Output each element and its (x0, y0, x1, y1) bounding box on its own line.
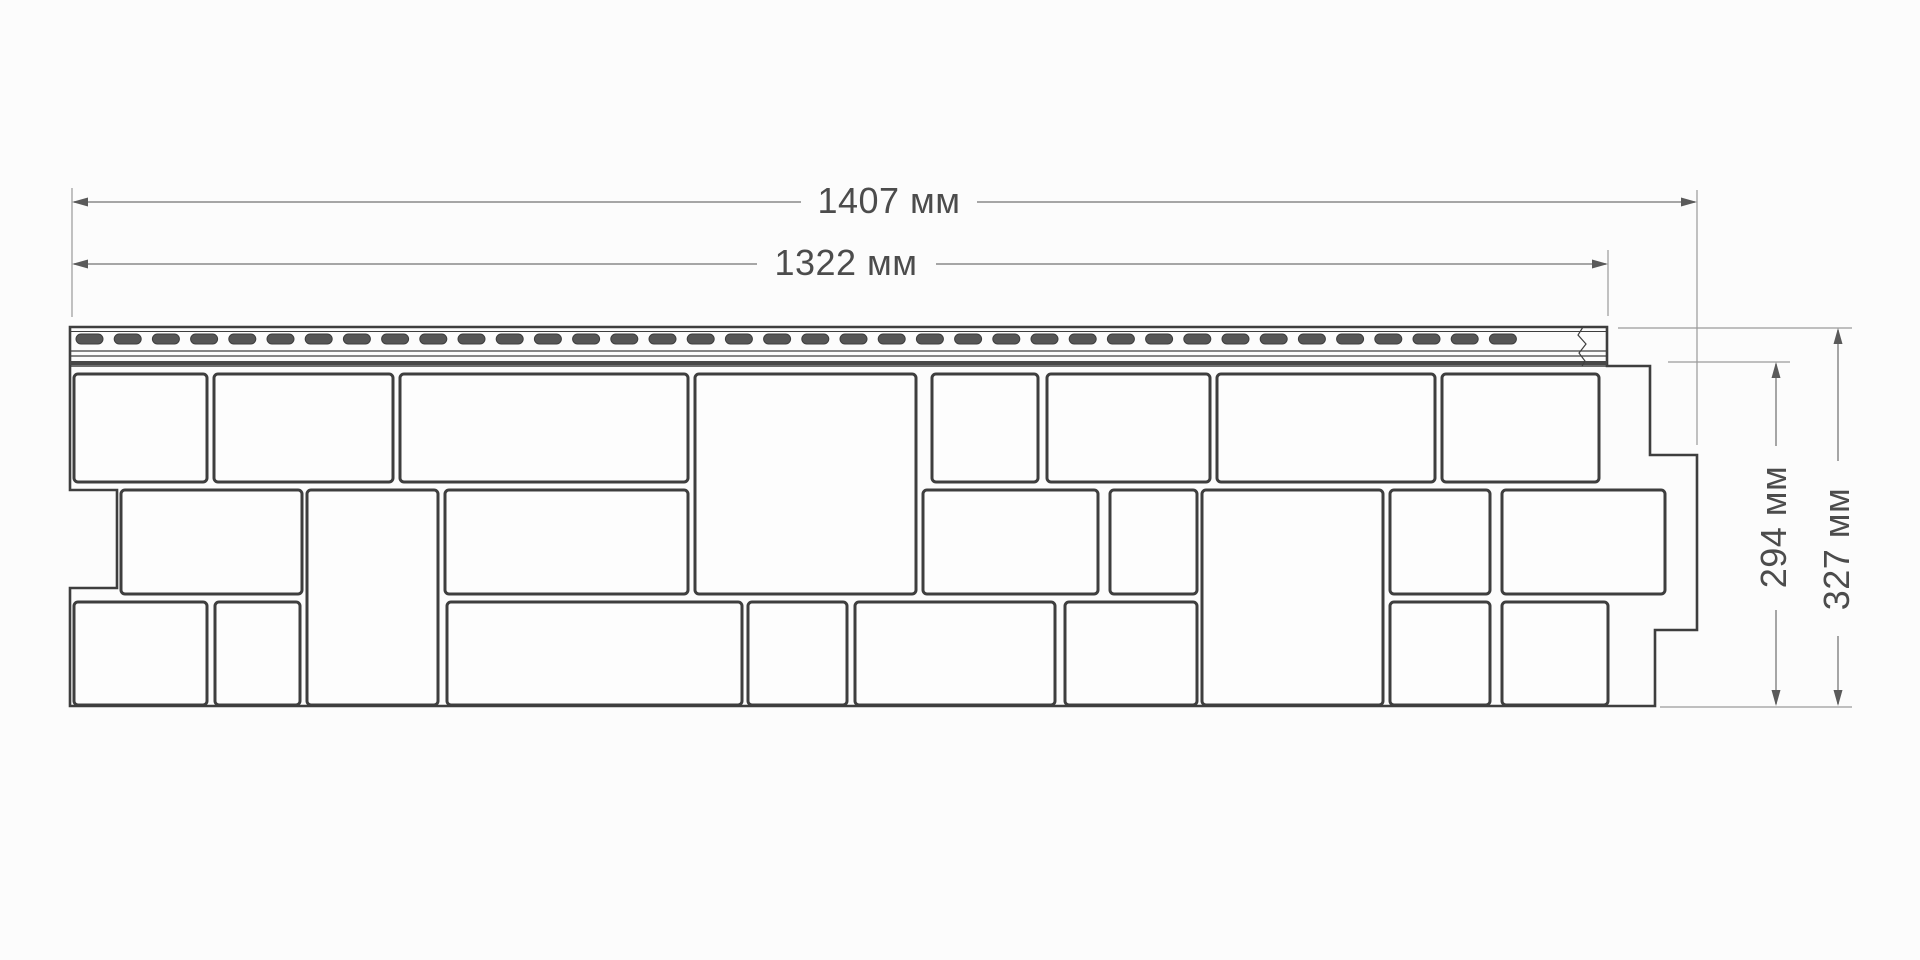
stone (1502, 602, 1608, 705)
arrowhead-left (72, 260, 88, 269)
facade-panel-diagram (0, 0, 1920, 960)
nail-slot (802, 334, 829, 344)
nail-slot (611, 334, 638, 344)
nail-slot (1413, 334, 1440, 344)
nail-slot (649, 334, 676, 344)
arrowhead-right (1592, 260, 1608, 269)
stone (1110, 490, 1197, 594)
stone (923, 490, 1098, 594)
hem-shadow-band (70, 361, 1607, 365)
nail-slot (1375, 334, 1402, 344)
nail-slot (840, 334, 867, 344)
panel-drawing: 1407 мм 1322 мм 294 мм 327 мм (0, 0, 1920, 960)
arrowhead-left (72, 198, 88, 207)
stone (695, 374, 916, 594)
nail-slot (687, 334, 714, 344)
stone (445, 490, 688, 594)
nail-slot (878, 334, 905, 344)
nail-slot (152, 334, 179, 344)
stone (1217, 374, 1435, 482)
dim-label-overall-height: 327 мм (1816, 476, 1858, 623)
arrowhead-right (1681, 198, 1697, 207)
nail-slot (1069, 334, 1096, 344)
nail-slot (1489, 334, 1516, 344)
stone (1390, 490, 1490, 594)
nail-slot (191, 334, 218, 344)
dim-label-visible-width: 1322 мм (764, 242, 927, 284)
stone (121, 490, 302, 594)
nail-slot (343, 334, 370, 344)
arrowhead-down (1772, 690, 1781, 706)
stone (400, 374, 688, 482)
nail-slot (267, 334, 294, 344)
nail-slot (993, 334, 1020, 344)
stone (1202, 490, 1383, 705)
nail-slot (420, 334, 447, 344)
stone (214, 374, 393, 482)
arrowhead-up (1772, 362, 1781, 378)
dim-label-visible-height: 294 мм (1753, 454, 1795, 601)
stone (447, 602, 742, 705)
arrowhead-up (1834, 328, 1843, 344)
nail-slot (305, 334, 332, 344)
nail-slot (725, 334, 752, 344)
nail-slot (1337, 334, 1364, 344)
stone (1502, 490, 1665, 594)
nail-slot (496, 334, 523, 344)
nail-slot (1107, 334, 1134, 344)
nail-slot (1222, 334, 1249, 344)
nail-slot (114, 334, 141, 344)
nail-slot (1146, 334, 1173, 344)
stone (1047, 374, 1210, 482)
nail-slot (458, 334, 485, 344)
nail-slot (573, 334, 600, 344)
nail-slot (76, 334, 103, 344)
stone (74, 374, 207, 482)
stone (74, 602, 207, 705)
stone (748, 602, 847, 705)
nail-slot (1184, 334, 1211, 344)
nail-slot (1298, 334, 1325, 344)
stone (1065, 602, 1197, 705)
stone-pattern (74, 374, 1665, 705)
nail-slot (916, 334, 943, 344)
nail-slot (1451, 334, 1478, 344)
nail-slot (955, 334, 982, 344)
nail-slot (534, 334, 561, 344)
dim-label-overall-width: 1407 мм (807, 180, 970, 222)
stone (855, 602, 1055, 705)
nail-slot (1260, 334, 1287, 344)
nail-slot (764, 334, 791, 344)
stone (307, 490, 438, 705)
arrowhead-down (1834, 690, 1843, 706)
stone (1442, 374, 1599, 482)
nail-slot (382, 334, 409, 344)
stone (1390, 602, 1490, 705)
nail-slot (229, 334, 256, 344)
stone (932, 374, 1038, 482)
stone (215, 602, 300, 705)
nail-slot (1031, 334, 1058, 344)
